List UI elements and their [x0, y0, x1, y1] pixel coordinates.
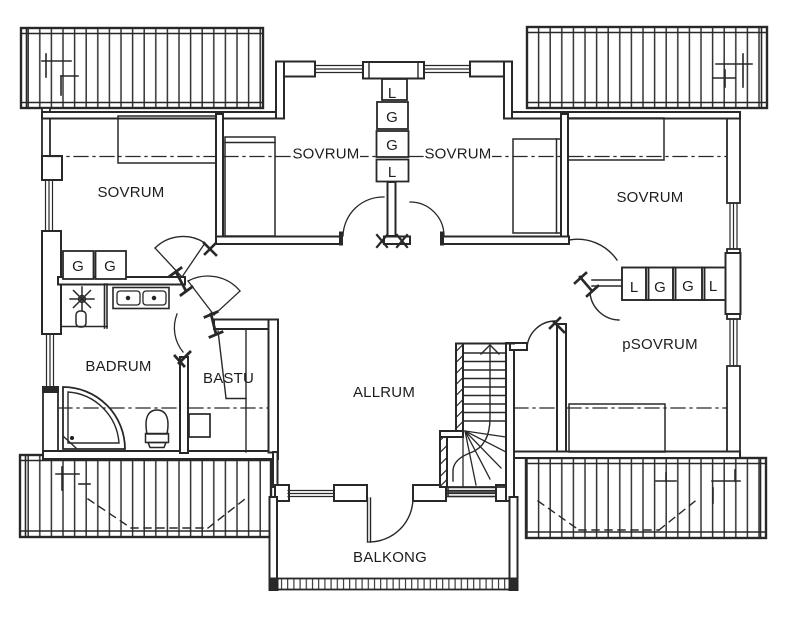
svg-text:G: G — [386, 137, 398, 154]
svg-text:L: L — [388, 85, 396, 102]
svg-text:L: L — [630, 279, 638, 296]
svg-text:G: G — [682, 278, 694, 295]
svg-text:SOVRUM: SOVRUM — [424, 146, 491, 163]
svg-text:L: L — [709, 278, 717, 295]
svg-text:pSOVRUM: pSOVRUM — [622, 336, 698, 353]
svg-text:BALKONG: BALKONG — [353, 549, 427, 566]
svg-text:G: G — [654, 279, 666, 296]
svg-text:G: G — [72, 258, 84, 275]
svg-text:ALLRUM: ALLRUM — [353, 384, 415, 401]
svg-text:G: G — [386, 109, 398, 126]
svg-text:SOVRUM: SOVRUM — [616, 189, 683, 206]
svg-text:SOVRUM: SOVRUM — [292, 146, 359, 163]
svg-text:BASTU: BASTU — [203, 370, 254, 387]
svg-text:L: L — [388, 164, 396, 181]
svg-text:BADRUM: BADRUM — [85, 358, 151, 375]
svg-text:G: G — [104, 258, 116, 275]
svg-text:SOVRUM: SOVRUM — [97, 184, 164, 201]
